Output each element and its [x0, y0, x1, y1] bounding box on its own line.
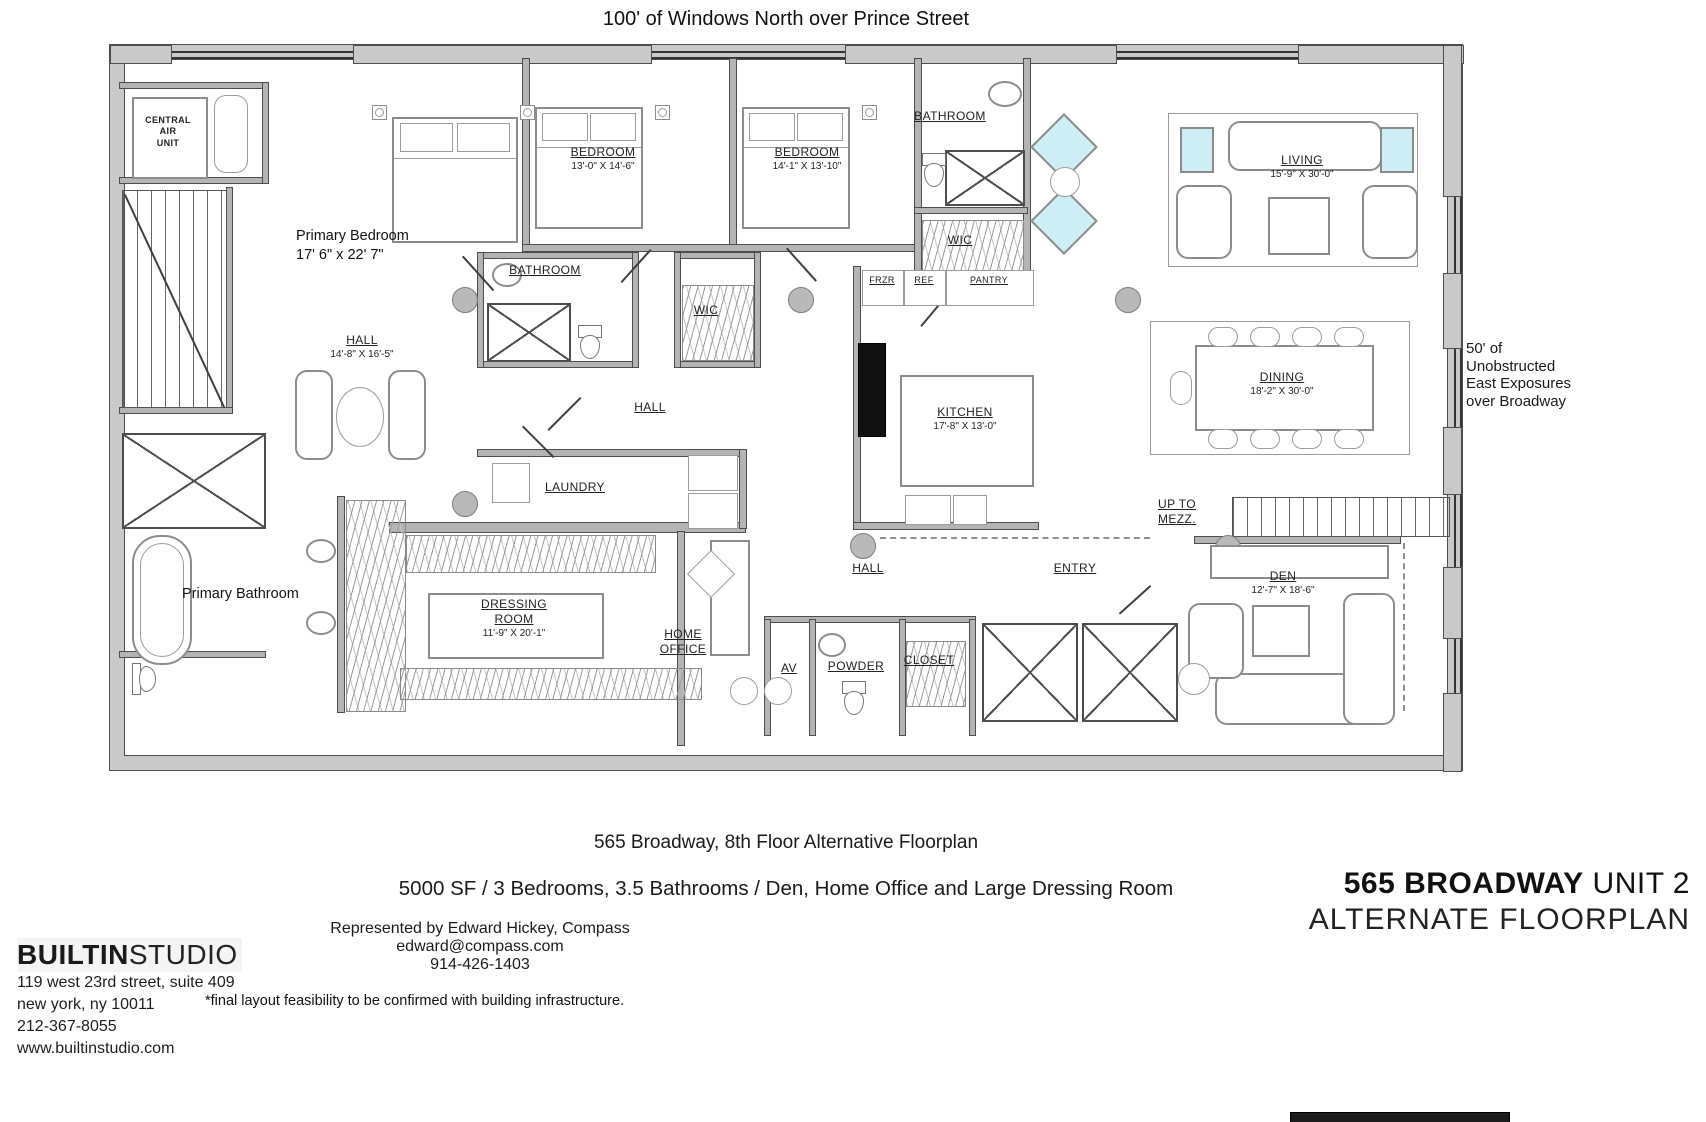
room-label-primary-bedroom: Primary Bedroom17' 6" x 22' 7": [296, 227, 426, 265]
lounge-chair-icon: [1362, 185, 1418, 259]
dining-chair-icon: [1334, 429, 1364, 449]
laundry-sink-icon: [492, 463, 530, 503]
closet-hatch: [346, 500, 406, 712]
closet-hatch: [906, 641, 966, 707]
wall-pier: [845, 45, 1117, 64]
mezz-stair-icon: [1232, 497, 1450, 537]
shower-icon: [945, 150, 1025, 206]
studio-phone: 212-367-8055: [17, 1016, 235, 1038]
studio-address: 119 west 23rd street, suite 409 new york…: [17, 972, 235, 1060]
room-label-dressing-room: DRESSING ROOM11'-9" X 20'-1": [434, 597, 594, 641]
room-label-ref: REF: [904, 275, 944, 286]
dining-chair-icon: [1208, 429, 1238, 449]
column-icon: [452, 491, 478, 517]
studio-logo-light: STUDIO: [129, 939, 238, 970]
closet-hatch: [400, 668, 702, 700]
room-label-primary-bathroom: Primary Bathroom: [182, 585, 312, 604]
caption-address: 565 Broadway, 8th Floor Alternative Floo…: [110, 832, 1462, 854]
studio-logo: BUILTINSTUDIO: [17, 938, 242, 972]
agent-phone: 914-426-1403: [270, 956, 690, 973]
room-label-home-office: HOME OFFICE: [638, 627, 728, 657]
wall-segment: [755, 253, 760, 367]
window-band-north: [150, 51, 1420, 59]
sink-icon: [818, 633, 846, 657]
pouf-icon: [730, 677, 758, 705]
dining-chair-icon: [1292, 429, 1322, 449]
wall-segment: [120, 408, 232, 413]
column-icon: [788, 287, 814, 313]
sink-icon: [988, 81, 1022, 107]
wall-segment: [675, 253, 760, 258]
title-block-line1: 565 BROADWAY UNIT 2: [1130, 866, 1690, 902]
dining-chair-icon: [1250, 429, 1280, 449]
toilet-icon: [578, 325, 600, 357]
agent-block: Represented by Edward Hickey, Compass ed…: [270, 920, 690, 974]
bed-icon: [392, 117, 518, 243]
title-block-address: 565 BROADWAY: [1344, 867, 1584, 900]
range-icon: [858, 343, 886, 437]
wall-segment: [478, 253, 483, 367]
side-table-icon: [1178, 663, 1210, 695]
wall-segment: [120, 83, 268, 88]
pouf-icon: [764, 677, 792, 705]
wall-segment: [740, 450, 746, 528]
wall-segment: [478, 253, 638, 258]
shower-icon: [487, 303, 571, 362]
wall-segment: [227, 188, 232, 413]
side-table-icon: [1380, 127, 1414, 173]
dining-chair-icon: [1208, 327, 1238, 347]
room-label-hall-rear: HALL: [838, 561, 898, 576]
room-label-closet: CLOSET: [892, 653, 966, 668]
wall-pier: [1298, 45, 1464, 64]
room-label-wic-hall: WIC: [676, 303, 736, 318]
wall-pier: [1443, 273, 1462, 349]
dryer-icon: [688, 493, 738, 529]
dining-chair-icon: [1334, 327, 1364, 347]
lounge-chair-icon: [1176, 185, 1232, 259]
agent-name: Represented by Edward Hickey, Compass: [270, 920, 690, 937]
room-label-pantry: PANTRY: [946, 275, 1032, 286]
room-label-living: LIVING15'-9" X 30'-0": [1222, 153, 1382, 182]
wall-segment: [730, 59, 736, 251]
shaft-icon: [122, 433, 266, 529]
wall-segment: [675, 362, 760, 367]
wall-segment: [633, 253, 638, 367]
column-icon: [452, 287, 478, 313]
sink-icon: [306, 539, 336, 563]
title-block-line2: ALTERNATE FLOORPLAN: [1130, 902, 1690, 938]
washer-icon: [688, 455, 738, 491]
wall-segment: [523, 59, 529, 251]
dining-chair-icon: [1250, 327, 1280, 347]
kitchen-sink-icon: [905, 495, 951, 525]
wall-pier: [1443, 45, 1462, 197]
sink-icon: [306, 611, 336, 635]
room-label-laundry: LAUNDRY: [530, 480, 620, 495]
east-exposure-note: 50' of Unobstructed East Exposures over …: [1466, 340, 1582, 411]
wall-segment: [263, 83, 268, 183]
room-label-bathroom-hall: BATHROOM: [500, 263, 590, 278]
toilet-icon: [132, 665, 154, 695]
wall-segment: [765, 620, 770, 735]
wall-segment: [765, 617, 975, 622]
den-boundary-line: [1403, 543, 1405, 711]
room-label-hall-center: HALL: [620, 400, 680, 415]
kitchen-counter: [953, 495, 987, 525]
wall-segment: [970, 620, 975, 735]
wall-segment: [478, 362, 638, 367]
room-label-up-to-mezz: UP TO MEZZ.: [1158, 497, 1222, 527]
wall-segment: [915, 208, 1027, 213]
wall-segment: [523, 245, 922, 251]
floorplan-sheet: 100' of Windows North over Prince Street: [0, 0, 1706, 1122]
wall-pier: [1443, 567, 1462, 639]
bench-icon: [388, 370, 426, 460]
wall-segment: [810, 620, 815, 735]
column-icon: [850, 533, 876, 559]
dining-chair-icon: [1170, 371, 1192, 405]
sconce-icon: [655, 105, 670, 120]
room-label-central-air: CENTRAL AIR UNIT: [134, 115, 202, 149]
table-icon: [336, 387, 384, 447]
wall-segment: [338, 497, 344, 712]
room-label-bathroom-top: BATHROOM: [910, 109, 990, 124]
dining-chair-icon: [1292, 327, 1322, 347]
partial-logo: [1290, 1112, 1510, 1122]
elevator-icon: [1082, 623, 1178, 722]
studio-address-line1: 119 west 23rd street, suite 409: [17, 972, 235, 994]
wic-hatch: [682, 285, 754, 361]
elevator-icon: [982, 623, 1078, 722]
closet-hatch: [406, 535, 656, 573]
wall-pier: [353, 45, 652, 64]
wall-pier: [110, 45, 172, 64]
ceiling-break-line: [880, 537, 1150, 539]
wall-segment: [915, 59, 921, 291]
toilet-icon: [842, 681, 864, 713]
coffee-table-icon: [1268, 197, 1330, 255]
wall-pier: [1443, 693, 1462, 772]
wall-segment: [900, 620, 905, 735]
room-label-frzr: FRZR: [862, 275, 902, 286]
wall-pier: [1443, 427, 1462, 495]
side-table-icon: [1180, 127, 1214, 173]
studio-address-line2: new york, ny 10011: [17, 994, 235, 1016]
studio-logo-bold: BUILTIN: [17, 939, 129, 970]
room-label-bedroom-3: BEDROOM14'-1" X 13'-10": [742, 145, 872, 174]
room-label-av: AV: [768, 661, 810, 676]
side-table-icon: [1050, 167, 1080, 197]
title-block: 565 BROADWAY UNIT 2 ALTERNATE FLOORPLAN: [1130, 866, 1690, 938]
room-label-bedroom-2: BEDROOM13'-0" X 14'-6": [538, 145, 668, 174]
north-exposure-note: 100' of Windows North over Prince Street: [110, 8, 1462, 31]
bench-icon: [295, 370, 333, 460]
toilet-icon: [922, 153, 944, 185]
room-label-entry: ENTRY: [1042, 561, 1108, 576]
room-label-kitchen: KITCHEN17'-8" X 13'-0": [905, 405, 1025, 434]
disclaimer: *final layout feasibility to be confirme…: [205, 993, 624, 1009]
chaise-icon: [214, 95, 248, 173]
room-label-wic-top: WIC: [930, 233, 990, 248]
room-label-den: DEN12'-7" X 18'-6": [1238, 569, 1328, 598]
agent-email[interactable]: edward@compass.com: [270, 938, 690, 955]
room-label-powder: POWDER: [816, 659, 896, 674]
coffee-table-icon: [1252, 605, 1310, 657]
sconce-icon: [862, 105, 877, 120]
room-label-hall-primary: HALL14'-8" X 16'-5": [302, 333, 422, 362]
column-icon: [1115, 287, 1141, 313]
den-sofa-icon: [1343, 593, 1395, 725]
sconce-icon: [372, 105, 387, 120]
room-label-dining: DINING18'-2" X 30'-0": [1202, 370, 1362, 399]
floor-plan: CENTRAL AIR UNIT Primary Bedroom17' 6" x…: [110, 45, 1462, 770]
sconce-icon: [520, 105, 535, 120]
title-block-unit: UNIT 2: [1584, 867, 1690, 900]
studio-website[interactable]: www.builtinstudio.com: [17, 1038, 235, 1060]
